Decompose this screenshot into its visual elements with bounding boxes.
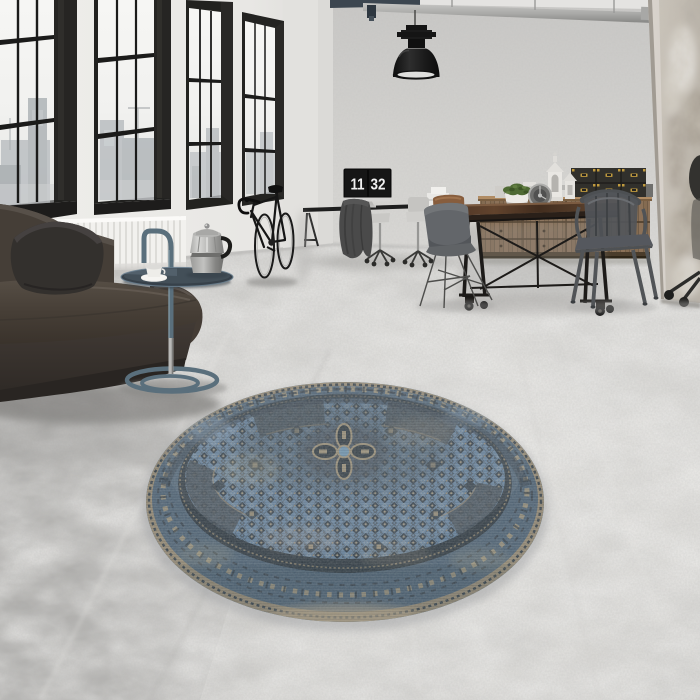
svg-text:32: 32 xyxy=(371,177,386,194)
svg-text:11: 11 xyxy=(351,177,365,194)
